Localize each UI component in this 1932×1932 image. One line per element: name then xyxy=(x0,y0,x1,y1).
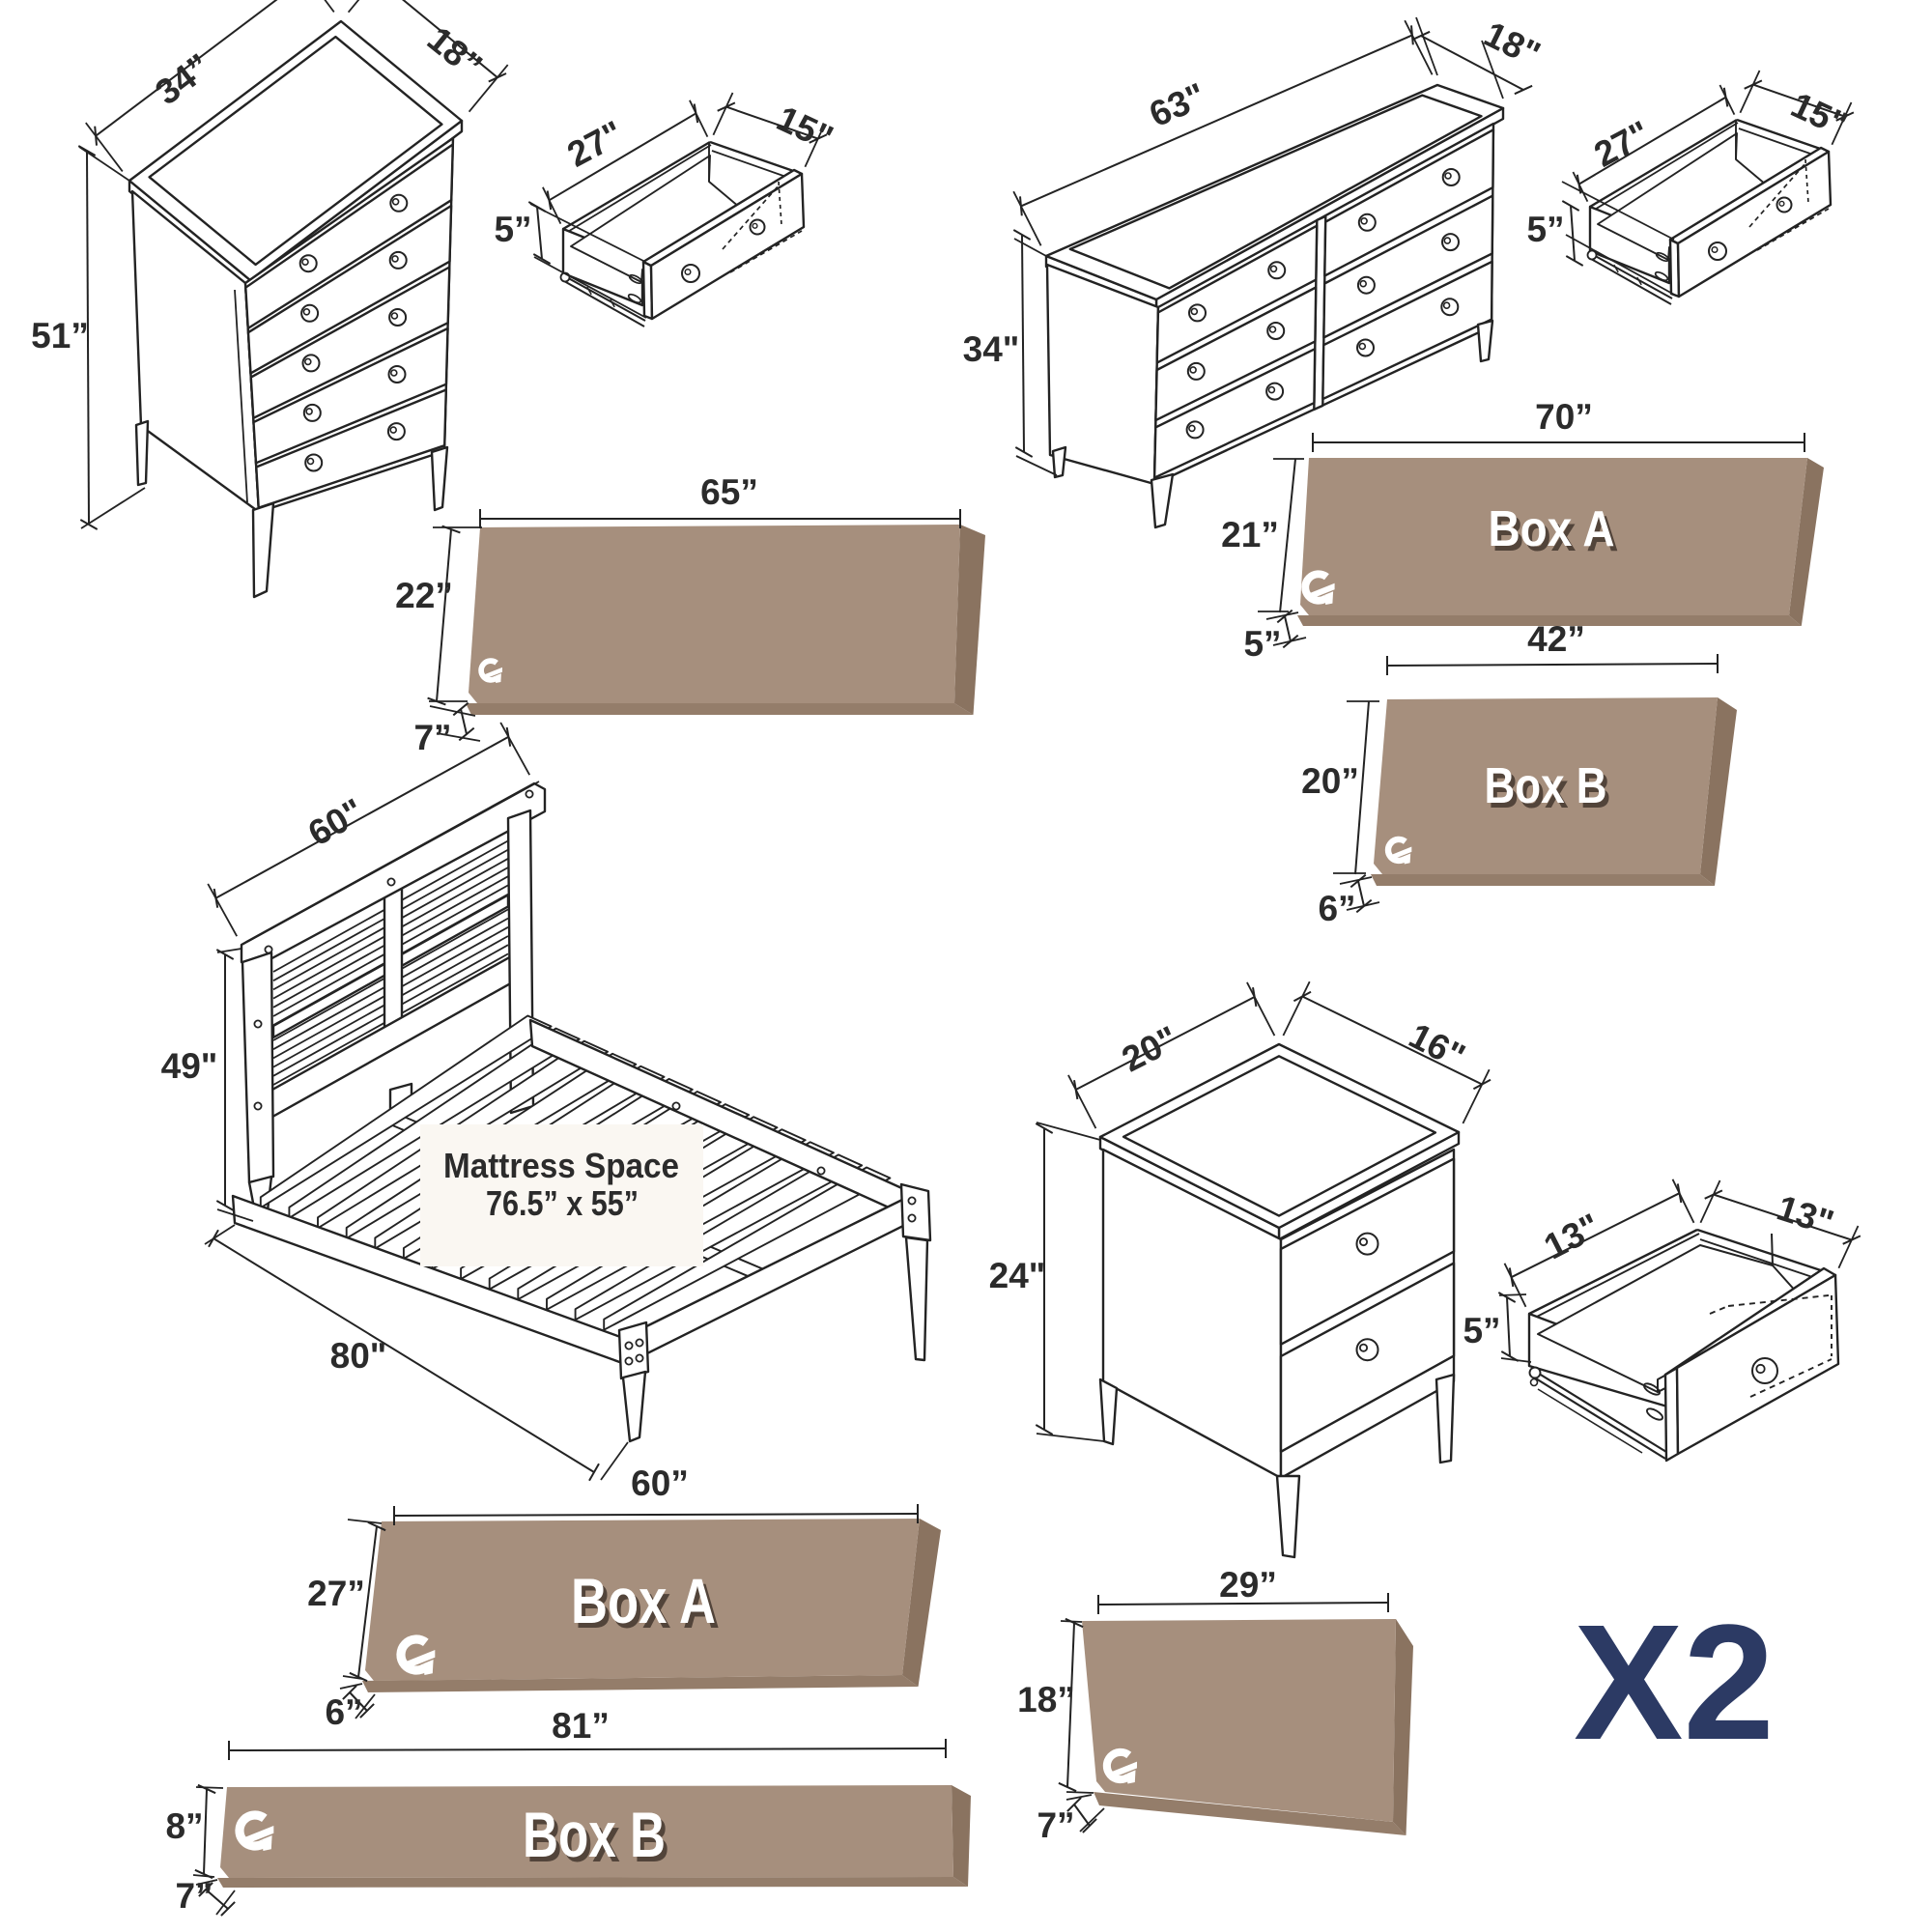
svg-text:60”: 60” xyxy=(631,1463,689,1503)
svg-text:Box B: Box B xyxy=(523,1799,666,1870)
svg-text:42”: 42” xyxy=(1527,619,1585,659)
svg-text:27”: 27” xyxy=(307,1574,365,1613)
svg-text:7”: 7” xyxy=(175,1876,213,1916)
svg-text:22”: 22” xyxy=(395,576,453,615)
svg-text:51”: 51” xyxy=(31,316,89,355)
svg-text:Box A: Box A xyxy=(1489,501,1615,557)
svg-text:24": 24" xyxy=(989,1256,1046,1295)
svg-text:70”: 70” xyxy=(1535,397,1593,437)
svg-text:80": 80" xyxy=(330,1336,387,1376)
svg-text:76.5” x 55”: 76.5” x 55” xyxy=(486,1183,639,1223)
svg-text:29”: 29” xyxy=(1219,1565,1277,1605)
svg-text:65”: 65” xyxy=(700,472,758,512)
svg-text:5”: 5” xyxy=(1243,624,1281,664)
svg-text:20”: 20” xyxy=(1301,761,1359,801)
svg-text:5”: 5” xyxy=(1463,1311,1500,1350)
svg-text:5”: 5” xyxy=(494,210,531,249)
svg-text:7”: 7” xyxy=(1037,1805,1074,1845)
svg-text:8”: 8” xyxy=(165,1806,203,1846)
svg-text:18”: 18” xyxy=(1017,1680,1075,1719)
svg-text:49": 49" xyxy=(161,1046,218,1086)
svg-text:21”: 21” xyxy=(1221,515,1279,554)
svg-text:Box A: Box A xyxy=(571,1565,716,1636)
svg-text:Box B: Box B xyxy=(1485,758,1607,814)
svg-text:6”: 6” xyxy=(1318,889,1355,928)
svg-text:81”: 81” xyxy=(552,1706,610,1746)
svg-text:5”: 5” xyxy=(1526,210,1564,249)
svg-text:X2: X2 xyxy=(1574,1591,1775,1775)
svg-text:6”: 6” xyxy=(325,1692,362,1732)
svg-text:34": 34" xyxy=(963,329,1020,369)
svg-text:Mattress Space: Mattress Space xyxy=(443,1146,679,1185)
svg-text:7”: 7” xyxy=(413,718,451,757)
